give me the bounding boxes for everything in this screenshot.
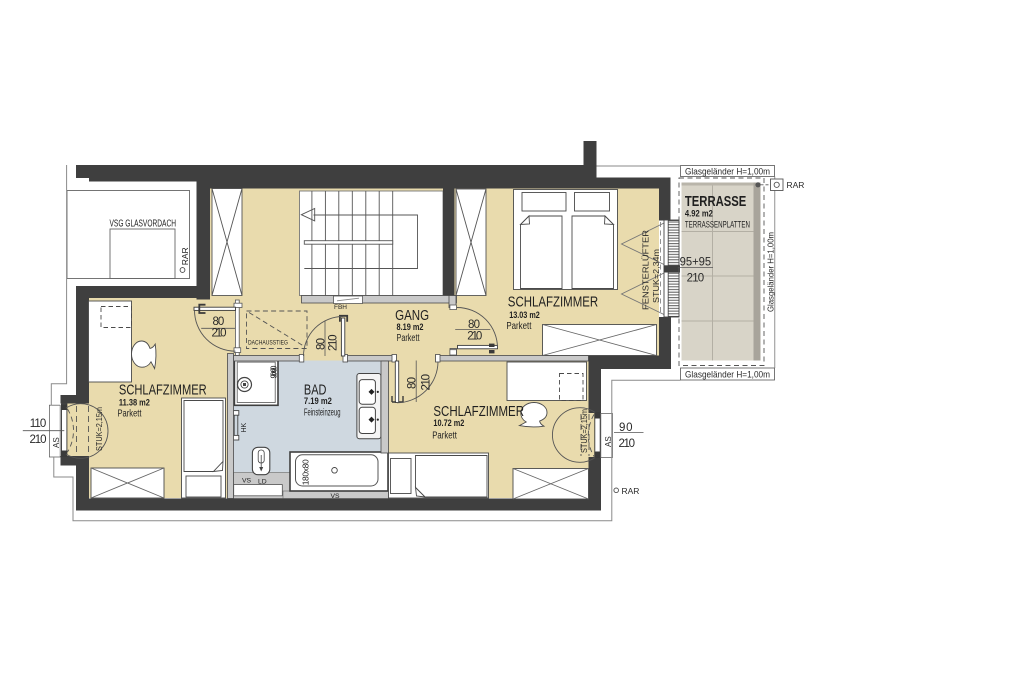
- svg-text:8.19 m2: 8.19 m2: [397, 322, 424, 333]
- svg-text:Parkett: Parkett: [397, 333, 420, 344]
- svg-text:210: 210: [687, 272, 705, 284]
- svg-text:11.38 m2: 11.38 m2: [119, 398, 150, 409]
- svg-text:10.72 m2: 10.72 m2: [433, 418, 464, 429]
- svg-text:STUK=2,15m: STUK=2,15m: [94, 407, 104, 451]
- svg-text:80: 80: [315, 338, 327, 350]
- svg-text:80: 80: [407, 377, 419, 389]
- svg-text:90x90: 90x90: [269, 365, 279, 378]
- svg-text:210: 210: [30, 434, 47, 446]
- svg-text:STUK=2,15m: STUK=2,15m: [579, 409, 589, 453]
- svg-text:210: 210: [212, 328, 227, 340]
- svg-text:Glasgeländer H=1,00m: Glasgeländer H=1,00m: [685, 166, 770, 177]
- svg-text:210: 210: [421, 374, 433, 391]
- svg-text:TERRASSE: TERRASSE: [685, 194, 747, 210]
- svg-text:TERRASSENPLATTEN: TERRASSENPLATTEN: [685, 219, 750, 230]
- svg-text:180x80: 180x80: [301, 459, 311, 485]
- svg-text:210: 210: [328, 335, 340, 352]
- svg-text:SCHLAFZIMMER: SCHLAFZIMMER: [119, 382, 207, 399]
- svg-text:110: 110: [30, 418, 47, 430]
- svg-text:Glasgeländer H=1,00m: Glasgeländer H=1,00m: [685, 370, 770, 381]
- svg-text:VS: VS: [242, 477, 252, 484]
- svg-text:FBH: FBH: [334, 304, 347, 311]
- svg-text:LD: LD: [258, 478, 267, 485]
- svg-text:80: 80: [213, 316, 225, 328]
- svg-text:FENSTERLÜFTER: FENSTERLÜFTER: [642, 230, 651, 310]
- svg-text:RAR: RAR: [787, 180, 805, 190]
- svg-text:7.19 m2: 7.19 m2: [304, 396, 332, 407]
- svg-text:HK: HK: [241, 422, 248, 432]
- svg-text:Glasgeländer H=1,00m: Glasgeländer H=1,00m: [766, 232, 776, 312]
- svg-text:210: 210: [467, 330, 482, 342]
- svg-text:13.03 m2: 13.03 m2: [509, 310, 540, 321]
- svg-text:Parkett: Parkett: [432, 431, 457, 442]
- svg-text:Parkett: Parkett: [506, 321, 531, 332]
- svg-text:VSG GLASVORDACH: VSG GLASVORDACH: [110, 219, 177, 230]
- svg-text:SCHLAFZIMMER: SCHLAFZIMMER: [508, 294, 598, 311]
- svg-text:AS: AS: [52, 437, 61, 448]
- svg-text:95+95: 95+95: [680, 257, 712, 269]
- svg-text:DACHAUSSTIEG: DACHAUSSTIEG: [248, 339, 288, 346]
- svg-text:RAR: RAR: [180, 247, 190, 265]
- svg-text:RAR: RAR: [622, 486, 640, 496]
- svg-text:Parkett: Parkett: [118, 409, 142, 420]
- svg-text:Feinsteinzeug: Feinsteinzeug: [304, 407, 341, 418]
- svg-text:STUK=2,34m: STUK=2,34m: [652, 249, 661, 303]
- svg-text:4.92 m2: 4.92 m2: [685, 209, 713, 220]
- svg-text:210: 210: [619, 438, 636, 450]
